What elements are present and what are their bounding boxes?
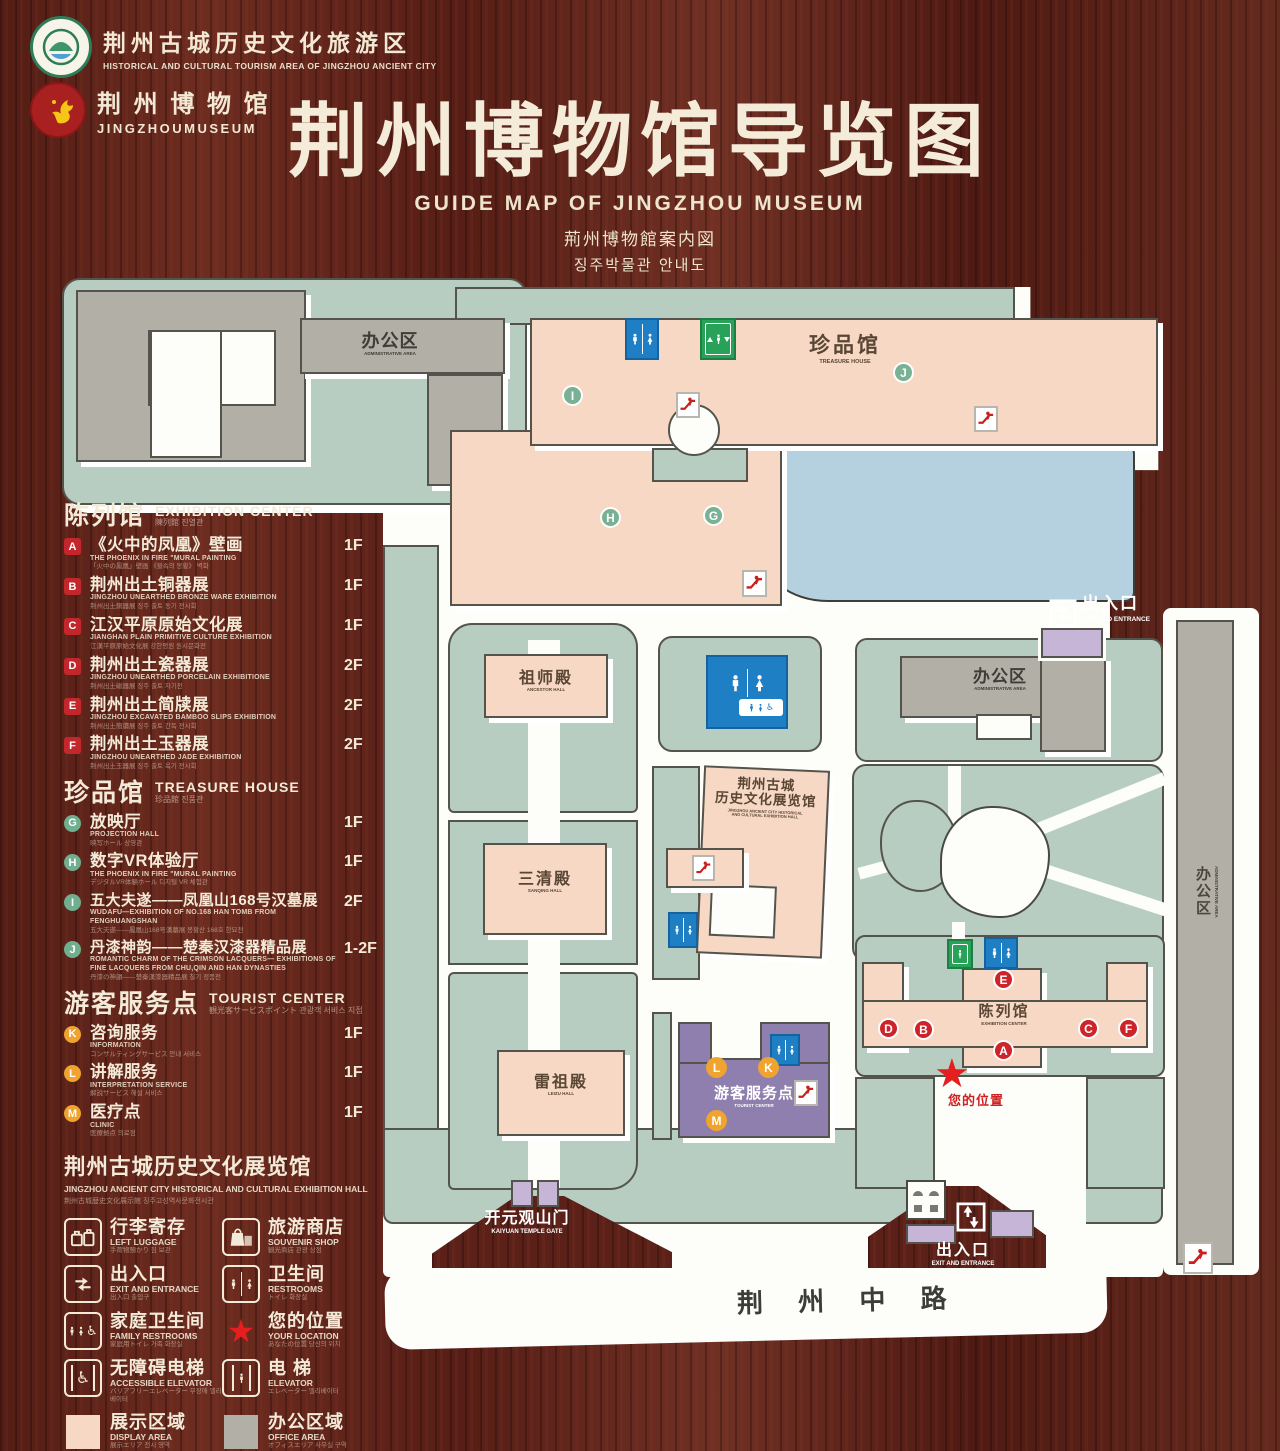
east-office-notch xyxy=(976,714,1032,740)
item-floor: 2F xyxy=(344,893,378,911)
item-en: THE PHOENIX IN FIRE "MURAL PAINTING xyxy=(90,555,340,564)
sidebar-legend-panel: 陈列馆 EXHIBITION CENTER 陳列館 진열관 A 《火中的凤凰》壁… xyxy=(64,494,378,1451)
section-title: 游客服务点 xyxy=(64,992,199,1017)
map-badge-c: C xyxy=(1078,1018,1099,1039)
badge-h: H xyxy=(64,854,81,871)
list-item-f: F 荆州出土玉器展 JINGZHOU UNEARTHED JADE EXHIBI… xyxy=(64,736,378,770)
badge-e: E xyxy=(64,698,81,715)
map-badge-e: E xyxy=(993,969,1014,990)
admin-strip-label: 办公区 ADMINISTRATIVE AREA xyxy=(1192,866,1219,918)
page-title-ko: 징주박물관 안내도 xyxy=(0,254,1280,275)
map-badge-f: F xyxy=(1118,1018,1139,1039)
tourism-logo-icon xyxy=(30,16,92,78)
elevator-icon xyxy=(222,1359,260,1397)
escalator-icon xyxy=(974,406,998,432)
south-gate-right xyxy=(990,1210,1034,1238)
restroom-icon xyxy=(222,1265,260,1303)
item-title: 医疗点 xyxy=(90,1104,340,1121)
list-item-g: G 放映厅 PROJECTION HALL 映写ホール 상영관 1F xyxy=(64,814,378,848)
tourism-logo: 荆州古城历史文化旅游区 HISTORICAL AND CULTURAL TOUR… xyxy=(30,16,437,78)
section-title-en: TOURIST CENTER xyxy=(209,991,363,1006)
exit-entrance-icon xyxy=(1049,599,1077,627)
item-asian: 五大夫遂——鳳凰山168号漢墓展 봉황산 168호 한묘전 xyxy=(90,927,340,935)
tourist-center-arm-left xyxy=(678,1022,712,1064)
legend-left-luggage: 行李寄存 LEFT LUGGAGE 手荷物預かり 짐 보관 xyxy=(64,1218,222,1256)
item-asian: 江漢平原原始文化展 강한평원 원시문화전 xyxy=(90,643,340,651)
exhibition-center-label: 陈列馆 EXHIBITION CENTER xyxy=(944,1004,1064,1026)
item-floor: 2F xyxy=(344,736,378,754)
item-asian: 荆州出土玉器展 징주 출토 옥기 전시회 xyxy=(90,763,340,771)
escalator-icon xyxy=(742,570,767,597)
section-title-asian: 珍品館 진품관 xyxy=(155,796,300,805)
list-item-k: K 咨询服务 INFORMATION コンサルティングサービス 안내 서비스 1… xyxy=(64,1025,378,1059)
section-tourist-center: 游客服务点 TOURIST CENTER 観光客サービスポイント 관광객 서비스… xyxy=(64,991,378,1016)
badge-b: B xyxy=(64,578,81,595)
road-label: 荆 州 中 路 xyxy=(736,1278,961,1320)
item-en: PROJECTION HALL xyxy=(90,831,340,840)
list-item-l: L 讲解服务 INTERPRETATION SERVICE 解説サービス 해설 … xyxy=(64,1064,378,1098)
legend-restrooms: 卫生间 RESTROOMS トイレ 화장실 xyxy=(222,1265,378,1303)
page-title-block: 荆州博物馆导览图 GUIDE MAP OF JINGZHOU MUSEUM 荊州… xyxy=(0,102,1280,275)
legend-elevator: 电 梯 ELEVATOR エレベーター 엘리베이터 xyxy=(222,1359,378,1404)
legend-accessible-elevator: 无障碍电梯 ACCESSIBLE ELEVATOR バリアフリーエレベーター 무… xyxy=(64,1359,222,1404)
section-treasure-house: 珍品馆 TREASURE HOUSE 珍品館 진품관 xyxy=(64,780,378,805)
item-title: 五大夫遂——凤凰山168号汉墓展 xyxy=(90,893,340,909)
escalator-icon xyxy=(794,1080,818,1106)
escalator-icon xyxy=(1183,1242,1213,1274)
section-title: 陈列馆 xyxy=(64,504,145,529)
exhibition-green-leg-right xyxy=(1086,1077,1165,1189)
item-title: 放映厅 xyxy=(90,814,340,831)
badge-a: A xyxy=(64,538,81,555)
restroom-icon xyxy=(984,937,1018,969)
list-item-i: I 五大夫遂——凤凰山168号汉墓展 WUDAFU—EXHIBITION OF … xyxy=(64,893,378,934)
item-asian: 丹漆の神韻——楚秦漢漆器精品展 칠기 정품전 xyxy=(90,974,340,982)
item-en: JINGZHOU EXCAVATED BAMBOO SLIPS EXHIBITI… xyxy=(90,714,340,723)
elevator-icon xyxy=(700,318,736,360)
item-asian: 荆州出土磁器展 징주 출토 자기전 xyxy=(90,683,340,691)
map-badge-l: L xyxy=(706,1057,727,1078)
map-badge-h: H xyxy=(600,507,621,528)
item-floor: 1F xyxy=(344,617,378,635)
ancestor-hall-building: 祖师殿 ANCESTOR HALL xyxy=(484,654,608,718)
legend: 行李寄存 LEFT LUGGAGE 手荷物預かり 짐 보관 旅游商店 SOUVE… xyxy=(64,1218,378,1451)
item-floor: 1F xyxy=(344,1064,378,1082)
escalator-icon xyxy=(692,855,715,881)
map-badge-m: M xyxy=(706,1110,727,1131)
item-floor: 2F xyxy=(344,657,378,675)
item-en: JINGZHOU UNEARTHED BRONZE WARE EXHIBITIO… xyxy=(90,594,340,603)
restroom-family-icon xyxy=(706,655,788,729)
history-hall-note: 荆州古城历史文化展览馆 JINGZHOU ANCIENT CITY HISTOR… xyxy=(64,1150,378,1206)
south-toilets-building xyxy=(906,1180,946,1220)
restroom-icon xyxy=(625,318,659,360)
badge-l: L xyxy=(64,1065,81,1082)
item-title: 《火中的凤凰》壁画 xyxy=(90,537,340,554)
item-floor: 1-2F xyxy=(344,940,378,958)
south-gate-left xyxy=(906,1224,956,1244)
elevator-icon xyxy=(947,939,973,969)
item-asian: デジタルVR体験ホール 디지털 VR 체험관 xyxy=(90,879,340,887)
hall-note-title: 荆州古城历史文化展览馆 xyxy=(64,1150,378,1181)
exit-south-label: 出入口 EXIT AND ENTRANCE xyxy=(905,1242,1021,1267)
item-title: 江汉平原原始文化展 xyxy=(90,617,340,634)
office-area-swatch xyxy=(222,1413,260,1451)
header: 荆州古城历史文化旅游区 HISTORICAL AND CULTURAL TOUR… xyxy=(0,0,1280,270)
map-badge-d: D xyxy=(878,1018,899,1039)
legend-exit-entrance: 出入口 EXIT AND ENTRANCE 出入口 출입구 xyxy=(64,1265,222,1303)
guide-map-poster: { "header": { "logo_tourism": {"zh": "荆州… xyxy=(0,0,1280,1451)
admin-nw-label: 办公区 ADMINISTRATIVE AREA xyxy=(330,332,450,357)
item-en: CLINIC xyxy=(90,1122,340,1131)
badge-g: G xyxy=(64,815,81,832)
item-asian: 荆州出土銅器展 징주 출토 동기 전시회 xyxy=(90,603,340,611)
item-en: WUDAFU—EXHIBITION OF NO.168 HAN TOMB FRO… xyxy=(90,909,340,927)
item-en: INFORMATION xyxy=(90,1042,340,1051)
item-en: JINGZHOU UNEARTHED JADE EXHIBITION xyxy=(90,754,340,763)
item-title: 荆州出土玉器展 xyxy=(90,736,340,753)
list-item-j: J 丹漆神韵——楚秦汉漆器精品展 ROMANTIC CHARM OF THE C… xyxy=(64,940,378,981)
treasure-house-label: 珍品馆 TREASURE HOUSE xyxy=(778,334,912,365)
location-star-icon xyxy=(222,1312,260,1350)
map-badge-a: A xyxy=(993,1040,1014,1061)
item-asian: 解説サービス 해설 서비스 xyxy=(90,1090,340,1098)
legend-your-location: 您的位置 YOUR LOCATION あなたの位置 당신의 위치 xyxy=(222,1312,378,1350)
display-area-swatch xyxy=(64,1413,102,1451)
exit-entrance-icon xyxy=(64,1265,102,1303)
item-floor: 1F xyxy=(344,1104,378,1122)
badge-m: M xyxy=(64,1105,81,1122)
item-title: 荆州出土简牍展 xyxy=(90,697,340,714)
hall-note-en: JINGZHOU ANCIENT CITY HISTORICAL AND CUL… xyxy=(64,1184,378,1194)
map-badge-j: J xyxy=(893,362,914,383)
badge-c: C xyxy=(64,618,81,635)
list-item-m: M 医疗点 CLINIC 医療拠点 의료점 1F xyxy=(64,1104,378,1138)
map-badge-g: G xyxy=(703,505,724,526)
item-floor: 1F xyxy=(344,814,378,832)
badge-f: F xyxy=(64,737,81,754)
item-title: 数字VR体验厅 xyxy=(90,853,340,870)
shopping-bag-icon xyxy=(222,1218,260,1256)
leizu-hall-building: 雷祖殿 LEIZU HALL xyxy=(497,1050,625,1136)
item-title: 丹漆神韵——楚秦汉漆器精品展 xyxy=(90,940,340,956)
exit-east-label: 出入口 EXIT AND ENTRANCE xyxy=(1082,595,1192,623)
item-en: ROMANTIC CHARM OF THE CRIMSON LACQUERS— … xyxy=(90,956,340,974)
item-floor: 1F xyxy=(344,1025,378,1043)
exit-entrance-icon xyxy=(956,1202,986,1232)
kaiyuan-gate-right xyxy=(537,1180,559,1207)
your-location-label: 您的位置 xyxy=(928,1094,1024,1108)
item-floor: 1F xyxy=(344,853,378,871)
list-item-h: H 数字VR体验厅 THE PHOENIX IN FIRE "MURAL PAI… xyxy=(64,853,378,887)
item-asian: 「火中の鳳凰」壁画 《불속의 봉황》 벽화 xyxy=(90,563,340,571)
east-strip-building xyxy=(1176,620,1234,1265)
item-asian: 荆州出土簡牘展 징주 출토 간독 전시회 xyxy=(90,723,340,731)
map-badge-i: I xyxy=(562,385,583,406)
item-asian: 映写ホール 상영관 xyxy=(90,840,340,848)
section-title-en: TREASURE HOUSE xyxy=(155,780,300,795)
list-item-b: B 荆州出土铜器展 JINGZHOU UNEARTHED BRONZE WARE… xyxy=(64,577,378,611)
escalator-icon xyxy=(676,392,700,418)
section-exhibition-center: 陈列馆 EXHIBITION CENTER 陳列館 진열관 xyxy=(64,504,378,529)
badge-j: J xyxy=(64,941,81,958)
tourism-logo-title: 荆州古城历史文化旅游区 xyxy=(103,24,437,58)
item-floor: 2F xyxy=(344,697,378,715)
page-title-en: GUIDE MAP OF JINGZHOU MUSEUM xyxy=(0,192,1280,216)
page-title: 荆州博物馆导览图 xyxy=(0,102,1280,182)
map-badge-k: K xyxy=(758,1057,779,1078)
list-item-d: D 荆州出土瓷器展 JINGZHOU UNEARTHED PORCELAIN E… xyxy=(64,657,378,691)
section-title-asian: 陳列館 진열관 xyxy=(155,519,314,528)
item-en: JINGZHOU UNEARTHED PORCELAIN EXHIBITIONE xyxy=(90,674,340,683)
list-item-e: E 荆州出土简牍展 JINGZHOU EXCAVATED BAMBOO SLIP… xyxy=(64,697,378,731)
badge-i: I xyxy=(64,894,81,911)
kaiyuan-gate-left xyxy=(511,1180,533,1207)
map-badge-b: B xyxy=(913,1019,934,1040)
legend-souvenir-shop: 旅游商店 SOUVENIR SHOP 観光商店 관광 상점 xyxy=(222,1218,378,1256)
kaiyuan-gate-label: 开元观山门 KAIYUAN TEMPLE GATE xyxy=(452,1210,602,1235)
garden-pond xyxy=(940,806,1050,918)
item-floor: 1F xyxy=(344,577,378,595)
page-title-ja: 荊州博物館案内図 xyxy=(0,225,1280,250)
legend-display-area: 展示区域 DISPLAY AREA 展示エリア 전시 영역 xyxy=(64,1413,222,1451)
your-location-star-icon xyxy=(934,1054,970,1094)
item-title: 荆州出土瓷器展 xyxy=(90,657,340,674)
badge-d: D xyxy=(64,658,81,675)
item-en: JIANGHAN PLAIN PRIMITIVE CULTURE EXHIBIT… xyxy=(90,634,340,643)
section-title: 珍品馆 xyxy=(64,781,145,806)
item-title: 咨询服务 xyxy=(90,1025,340,1042)
tourist-green-sliver xyxy=(652,1012,672,1140)
item-asian: 医療拠点 의료점 xyxy=(90,1130,340,1138)
legend-family-restrooms: 家庭卫生间 FAMILY RESTROOMS 家庭用トイレ 가족 화장실 xyxy=(64,1312,222,1350)
admin-east-label: 办公区 ADMINISTRATIVE AREA xyxy=(930,668,1070,692)
item-floor: 1F xyxy=(344,537,378,555)
restroom-icon xyxy=(668,912,698,948)
item-title: 讲解服务 xyxy=(90,1064,340,1081)
lake xyxy=(758,440,1135,602)
west-green-column xyxy=(383,545,439,1145)
luggage-icon xyxy=(64,1218,102,1256)
exhibition-green-leg-left xyxy=(855,1077,935,1189)
family-restroom-icon xyxy=(64,1312,102,1350)
item-asian: コンサルティングサービス 안내 서비스 xyxy=(90,1051,340,1059)
list-item-a: A 《火中的凤凰》壁画 THE PHOENIX IN FIRE "MURAL P… xyxy=(64,537,378,571)
legend-office-area: 办公区域 OFFICE AREA オフィスエリア 사무실 구역 xyxy=(222,1413,378,1451)
tourism-logo-subtitle: HISTORICAL AND CULTURAL TOURISM AREA OF … xyxy=(103,61,437,71)
item-title: 荆州出土铜器展 xyxy=(90,577,340,594)
nw-office-courtyard-2 xyxy=(150,330,222,458)
east-gate xyxy=(1041,628,1103,658)
badge-k: K xyxy=(64,1026,81,1043)
list-item-c: C 江汉平原原始文化展 JIANGHAN PLAIN PRIMITIVE CUL… xyxy=(64,617,378,651)
hall-note-asian: 荆州古城歴史文化展示館 징주고성역사문화전시관 xyxy=(64,1196,378,1206)
accessible-elevator-icon xyxy=(64,1359,102,1397)
sanqing-hall-building: 三清殿 SANQING HALL xyxy=(483,843,607,935)
section-title-asian: 観光客サービスポイント 관광객 서비스 지점 xyxy=(209,1007,363,1016)
